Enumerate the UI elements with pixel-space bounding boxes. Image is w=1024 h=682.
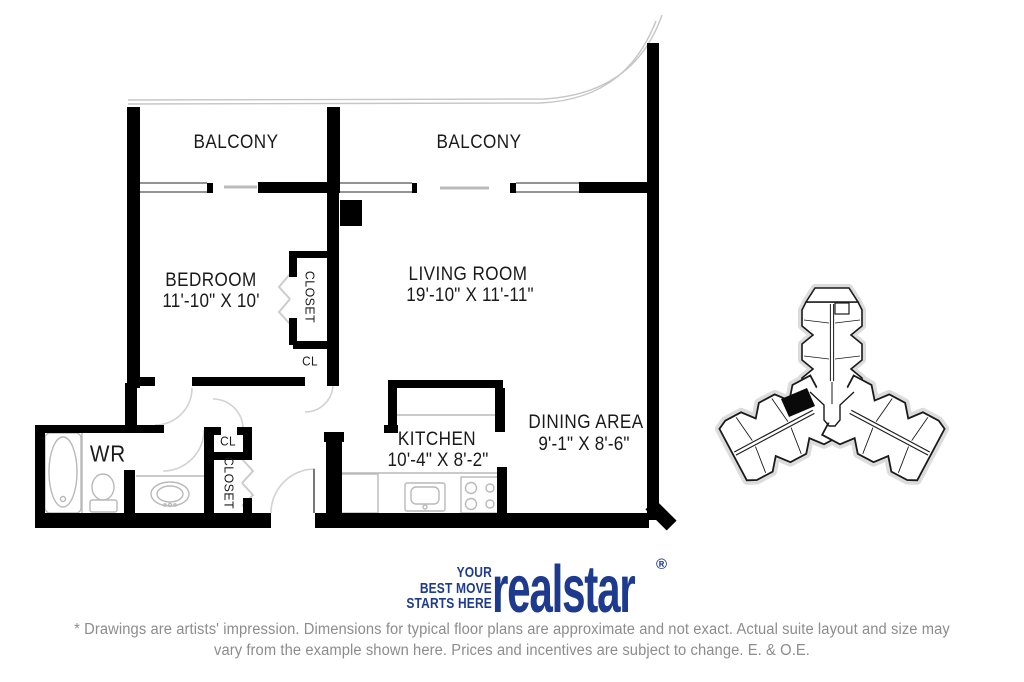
balcony-divider-wall bbox=[327, 107, 340, 193]
entry-door-arc bbox=[271, 469, 315, 513]
balcony-right-label: BALCONY bbox=[437, 132, 522, 154]
dining-area-dims: 9'-1" X 8'-6" bbox=[538, 434, 629, 456]
bedroom-dims: 11'-10" X 10' bbox=[162, 291, 259, 313]
bedroom-closet-bifold bbox=[279, 274, 290, 324]
tagline-line2: BEST MOVE bbox=[406, 581, 492, 597]
living-room-dims: 19'-10" X 11'-11" bbox=[406, 285, 534, 307]
toilet-tank bbox=[90, 500, 117, 512]
registered-trademark-icon: ® bbox=[656, 556, 667, 573]
bedroom-label: BEDROOM bbox=[165, 270, 257, 292]
kitchen-label: KITCHEN bbox=[398, 429, 476, 451]
key-plan-wings bbox=[717, 288, 946, 484]
toilet-bowl bbox=[92, 474, 114, 500]
central-wall bbox=[327, 182, 339, 386]
washroom-door-arc bbox=[163, 430, 204, 471]
disclaimer-line1: * Drawings are artists' impression. Dime… bbox=[26, 619, 999, 640]
right-outer-wall bbox=[647, 43, 659, 520]
entry-closet-label: CLOSET bbox=[222, 457, 237, 509]
kitchen-dims: 10'-4" X 8'-2" bbox=[387, 450, 488, 472]
entry-closet-door-arc bbox=[213, 399, 243, 429]
entry-closet-upper-label: CL bbox=[220, 434, 236, 449]
bottom-wall-right bbox=[315, 513, 649, 528]
balcony-left-label: BALCONY bbox=[194, 132, 279, 154]
entry-pier-wall bbox=[326, 432, 342, 515]
realstar-logo: realstar bbox=[492, 551, 634, 628]
living-room-label: LIVING ROOM bbox=[409, 264, 528, 286]
column-block bbox=[340, 200, 362, 226]
disclaimer-line2: vary from the example shown here. Prices… bbox=[26, 640, 999, 661]
hall-closet-door-arc bbox=[305, 384, 333, 412]
key-plan bbox=[717, 288, 946, 484]
left-outer-wall bbox=[127, 107, 140, 388]
floor-plan-flyer: BALCONY BALCONY BEDROOM 11'-10" X 10' LI… bbox=[0, 0, 1024, 682]
tagline-line1: YOUR bbox=[406, 565, 492, 581]
walls bbox=[35, 43, 677, 531]
hall-closet-label: CL bbox=[302, 354, 318, 369]
bedroom-bottom-wall bbox=[192, 377, 294, 386]
kitchen-top-wall bbox=[388, 380, 503, 388]
logo-tagline: YOUR BEST MOVE STARTS HERE bbox=[406, 565, 492, 612]
building-edge-curve bbox=[128, 15, 662, 104]
counter-left bbox=[340, 474, 378, 513]
dining-area-label: DINING AREA bbox=[528, 412, 643, 434]
tagline-line3: STARTS HERE bbox=[406, 596, 492, 612]
disclaimer: * Drawings are artists' impression. Dime… bbox=[26, 619, 999, 661]
bottom-wall-left bbox=[35, 513, 271, 528]
bedroom-closet-label: CLOSET bbox=[303, 271, 318, 323]
washroom-label: WR bbox=[90, 441, 126, 468]
washroom-top-wall bbox=[35, 425, 164, 433]
bedroom-door-arc bbox=[155, 388, 192, 425]
